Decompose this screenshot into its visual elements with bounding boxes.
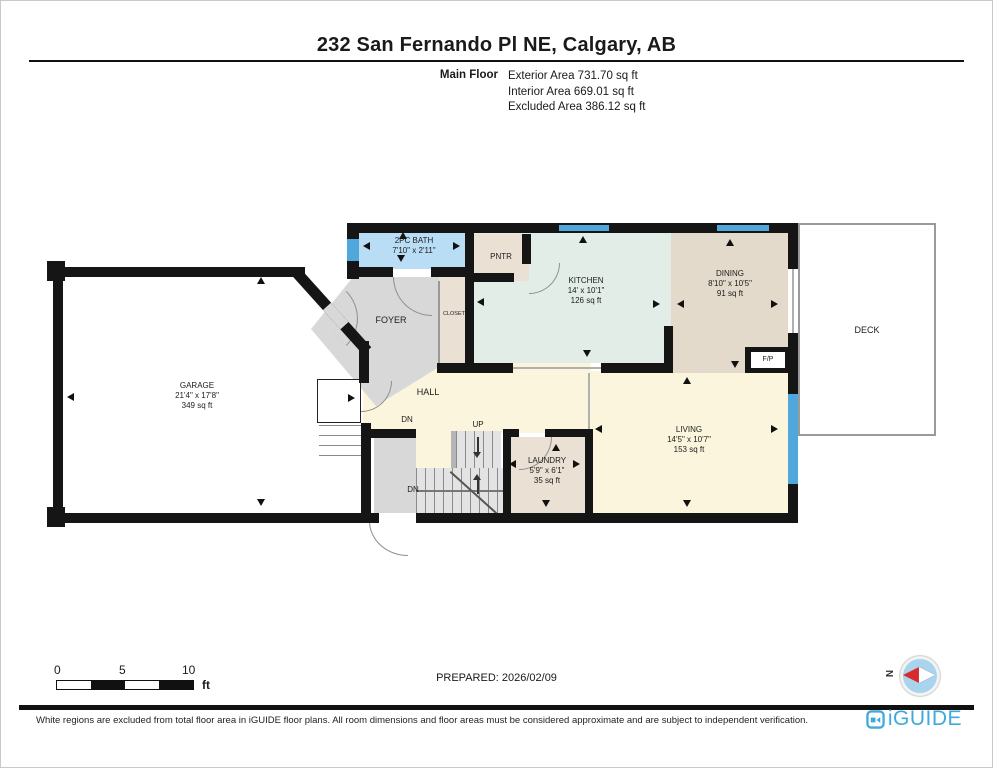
compass-needle-north-icon <box>903 667 919 683</box>
extent-arrow-icon <box>771 300 778 308</box>
room-name: DINING <box>708 269 752 279</box>
stair-landing-hall <box>374 438 416 513</box>
stairs-text: DN <box>407 485 419 495</box>
stairs-down-arrow-icon <box>473 474 482 496</box>
compass: N <box>887 653 945 701</box>
window-dining <box>717 225 769 231</box>
extent-arrow-icon <box>453 242 460 250</box>
extent-arrow-icon <box>67 393 74 401</box>
extent-arrow-icon <box>573 460 580 468</box>
room-name: FOYER <box>375 315 406 325</box>
room-area: 35 sq ft <box>528 476 566 486</box>
extent-arrow-icon <box>348 394 355 402</box>
wall <box>53 513 379 523</box>
extent-arrow-icon <box>677 300 684 308</box>
extent-arrow-icon <box>653 300 660 308</box>
extent-arrow-icon <box>579 236 587 243</box>
room-dims: 8'10" x 10'5" <box>708 279 752 289</box>
wall <box>437 363 513 373</box>
compass-north-label: N <box>885 670 896 677</box>
interior-area: Interior Area 669.01 sq ft <box>508 85 645 101</box>
stairs-text: UP <box>472 420 483 430</box>
stairs-text: DN <box>401 415 413 425</box>
room-name: HALL <box>417 387 440 397</box>
room-area: 91 sq ft <box>708 289 752 299</box>
deck-patio-door <box>792 269 794 333</box>
iguide-brand: iGUIDE <box>866 707 962 731</box>
extent-arrow-icon <box>583 350 591 357</box>
footer-disclaimer: White regions are excluded from total fl… <box>36 715 808 726</box>
room-label-deck: DECK <box>854 325 879 335</box>
room-name: GARAGE <box>175 381 219 391</box>
room-label-laundry: LAUNDRY 5'9" x 6'1" 35 sq ft <box>528 456 566 486</box>
window-kitchen <box>559 225 609 231</box>
floor-plan-page: 232 San Fernando Pl NE, Calgary, AB Main… <box>0 0 993 768</box>
wall <box>788 223 798 269</box>
excluded-area: Excluded Area 386.12 sq ft <box>508 100 645 116</box>
wall <box>465 223 474 373</box>
wall <box>416 513 508 523</box>
room-name: KITCHEN <box>568 276 605 286</box>
room-label-kitchen: KITCHEN 14' x 10'1" 126 sq ft <box>568 276 605 306</box>
extent-arrow-icon <box>509 460 516 468</box>
room-dims: 5'9" x 6'1" <box>528 466 566 476</box>
room-label-pantry: PNTR <box>490 252 512 262</box>
compass-needle-south-icon <box>919 667 935 683</box>
room-dims: 14'5" x 10'7" <box>667 435 711 445</box>
room-name: F/P <box>763 355 774 365</box>
door-swing-arc-side-entry <box>369 521 408 556</box>
room-name: PNTR <box>490 252 512 262</box>
room-label-garage: GARAGE 21'4" x 17'8" 349 sq ft <box>175 381 219 411</box>
room-dims: 14' x 10'1" <box>568 286 605 296</box>
wall <box>53 267 63 523</box>
extent-arrow-icon <box>542 500 550 507</box>
area-summary: Exterior Area 731.70 sq ft Interior Area… <box>508 69 645 116</box>
wall <box>369 429 416 438</box>
room-dims: 21'4" x 17'8" <box>175 391 219 401</box>
room-area: 153 sq ft <box>667 445 711 455</box>
stairs-dn-label-1: DN <box>401 415 413 425</box>
stairs-up-label: UP <box>472 420 483 430</box>
closet-door <box>438 281 440 363</box>
wall <box>347 267 393 277</box>
wall <box>361 423 371 523</box>
room-name: 2PC BATH <box>392 236 435 246</box>
wall <box>53 267 305 277</box>
extent-arrow-icon <box>683 500 691 507</box>
window-living <box>788 394 798 484</box>
fireplace-label: F/P <box>763 355 774 365</box>
extent-arrow-icon <box>257 499 265 506</box>
exterior-area: Exterior Area 731.70 sq ft <box>508 69 645 85</box>
room-fill-hall-stairwell <box>416 431 456 468</box>
iguide-logo-icon <box>866 710 885 729</box>
wall <box>503 429 511 513</box>
extent-arrow-icon <box>683 377 691 384</box>
page-title: 232 San Fernando Pl NE, Calgary, AB <box>1 34 992 57</box>
garage-stairs <box>319 425 361 463</box>
room-dims: 7'10" x 2'11" <box>392 246 435 256</box>
wall <box>585 429 593 513</box>
wall <box>545 429 591 437</box>
extent-arrow-icon <box>552 444 560 451</box>
room-label-hall: HALL <box>417 387 440 397</box>
prepared-date: PREPARED: 2026/02/09 <box>1 672 992 684</box>
room-label-living: LIVING 14'5" x 10'7" 153 sq ft <box>667 425 711 455</box>
wall <box>601 363 673 373</box>
stairs-up-arrow-icon <box>473 437 482 459</box>
room-label-closet: CLOSET <box>443 309 465 319</box>
wall <box>506 513 798 523</box>
room-label-bath: 2PC BATH 7'10" x 2'11" <box>392 236 435 256</box>
wall <box>359 341 369 383</box>
room-label-foyer: FOYER <box>375 315 406 325</box>
stairs-down-midrail <box>416 490 503 492</box>
extent-arrow-icon <box>595 425 602 433</box>
stairs-dn-label-2: DN <box>407 485 419 495</box>
extent-arrow-icon <box>397 255 405 262</box>
extent-arrow-icon <box>726 239 734 246</box>
extent-arrow-icon <box>771 425 778 433</box>
room-area: 126 sq ft <box>568 296 605 306</box>
room-name: LIVING <box>667 425 711 435</box>
iguide-brand-text: iGUIDE <box>888 707 962 731</box>
extent-arrow-icon <box>477 298 484 306</box>
opening-kitchen-hall <box>513 367 601 369</box>
wall <box>664 326 673 373</box>
room-area: 349 sq ft <box>175 401 219 411</box>
extent-arrow-icon <box>731 361 739 368</box>
extent-arrow-icon <box>257 277 265 284</box>
footer-divider <box>19 705 974 710</box>
extent-arrow-icon <box>363 242 370 250</box>
room-label-dining: DINING 8'10" x 10'5" 91 sq ft <box>708 269 752 299</box>
room-name: CLOSET <box>443 309 465 319</box>
opening-hall-living <box>588 373 590 429</box>
wall-end-cap <box>47 507 65 527</box>
room-name: LAUNDRY <box>528 456 566 466</box>
wall <box>474 273 514 282</box>
wall <box>522 234 531 264</box>
floor-label: Main Floor <box>341 69 498 81</box>
room-name: DECK <box>854 325 879 335</box>
window-bath <box>347 239 359 261</box>
wall-end-cap <box>47 261 65 281</box>
title-divider <box>29 60 964 62</box>
